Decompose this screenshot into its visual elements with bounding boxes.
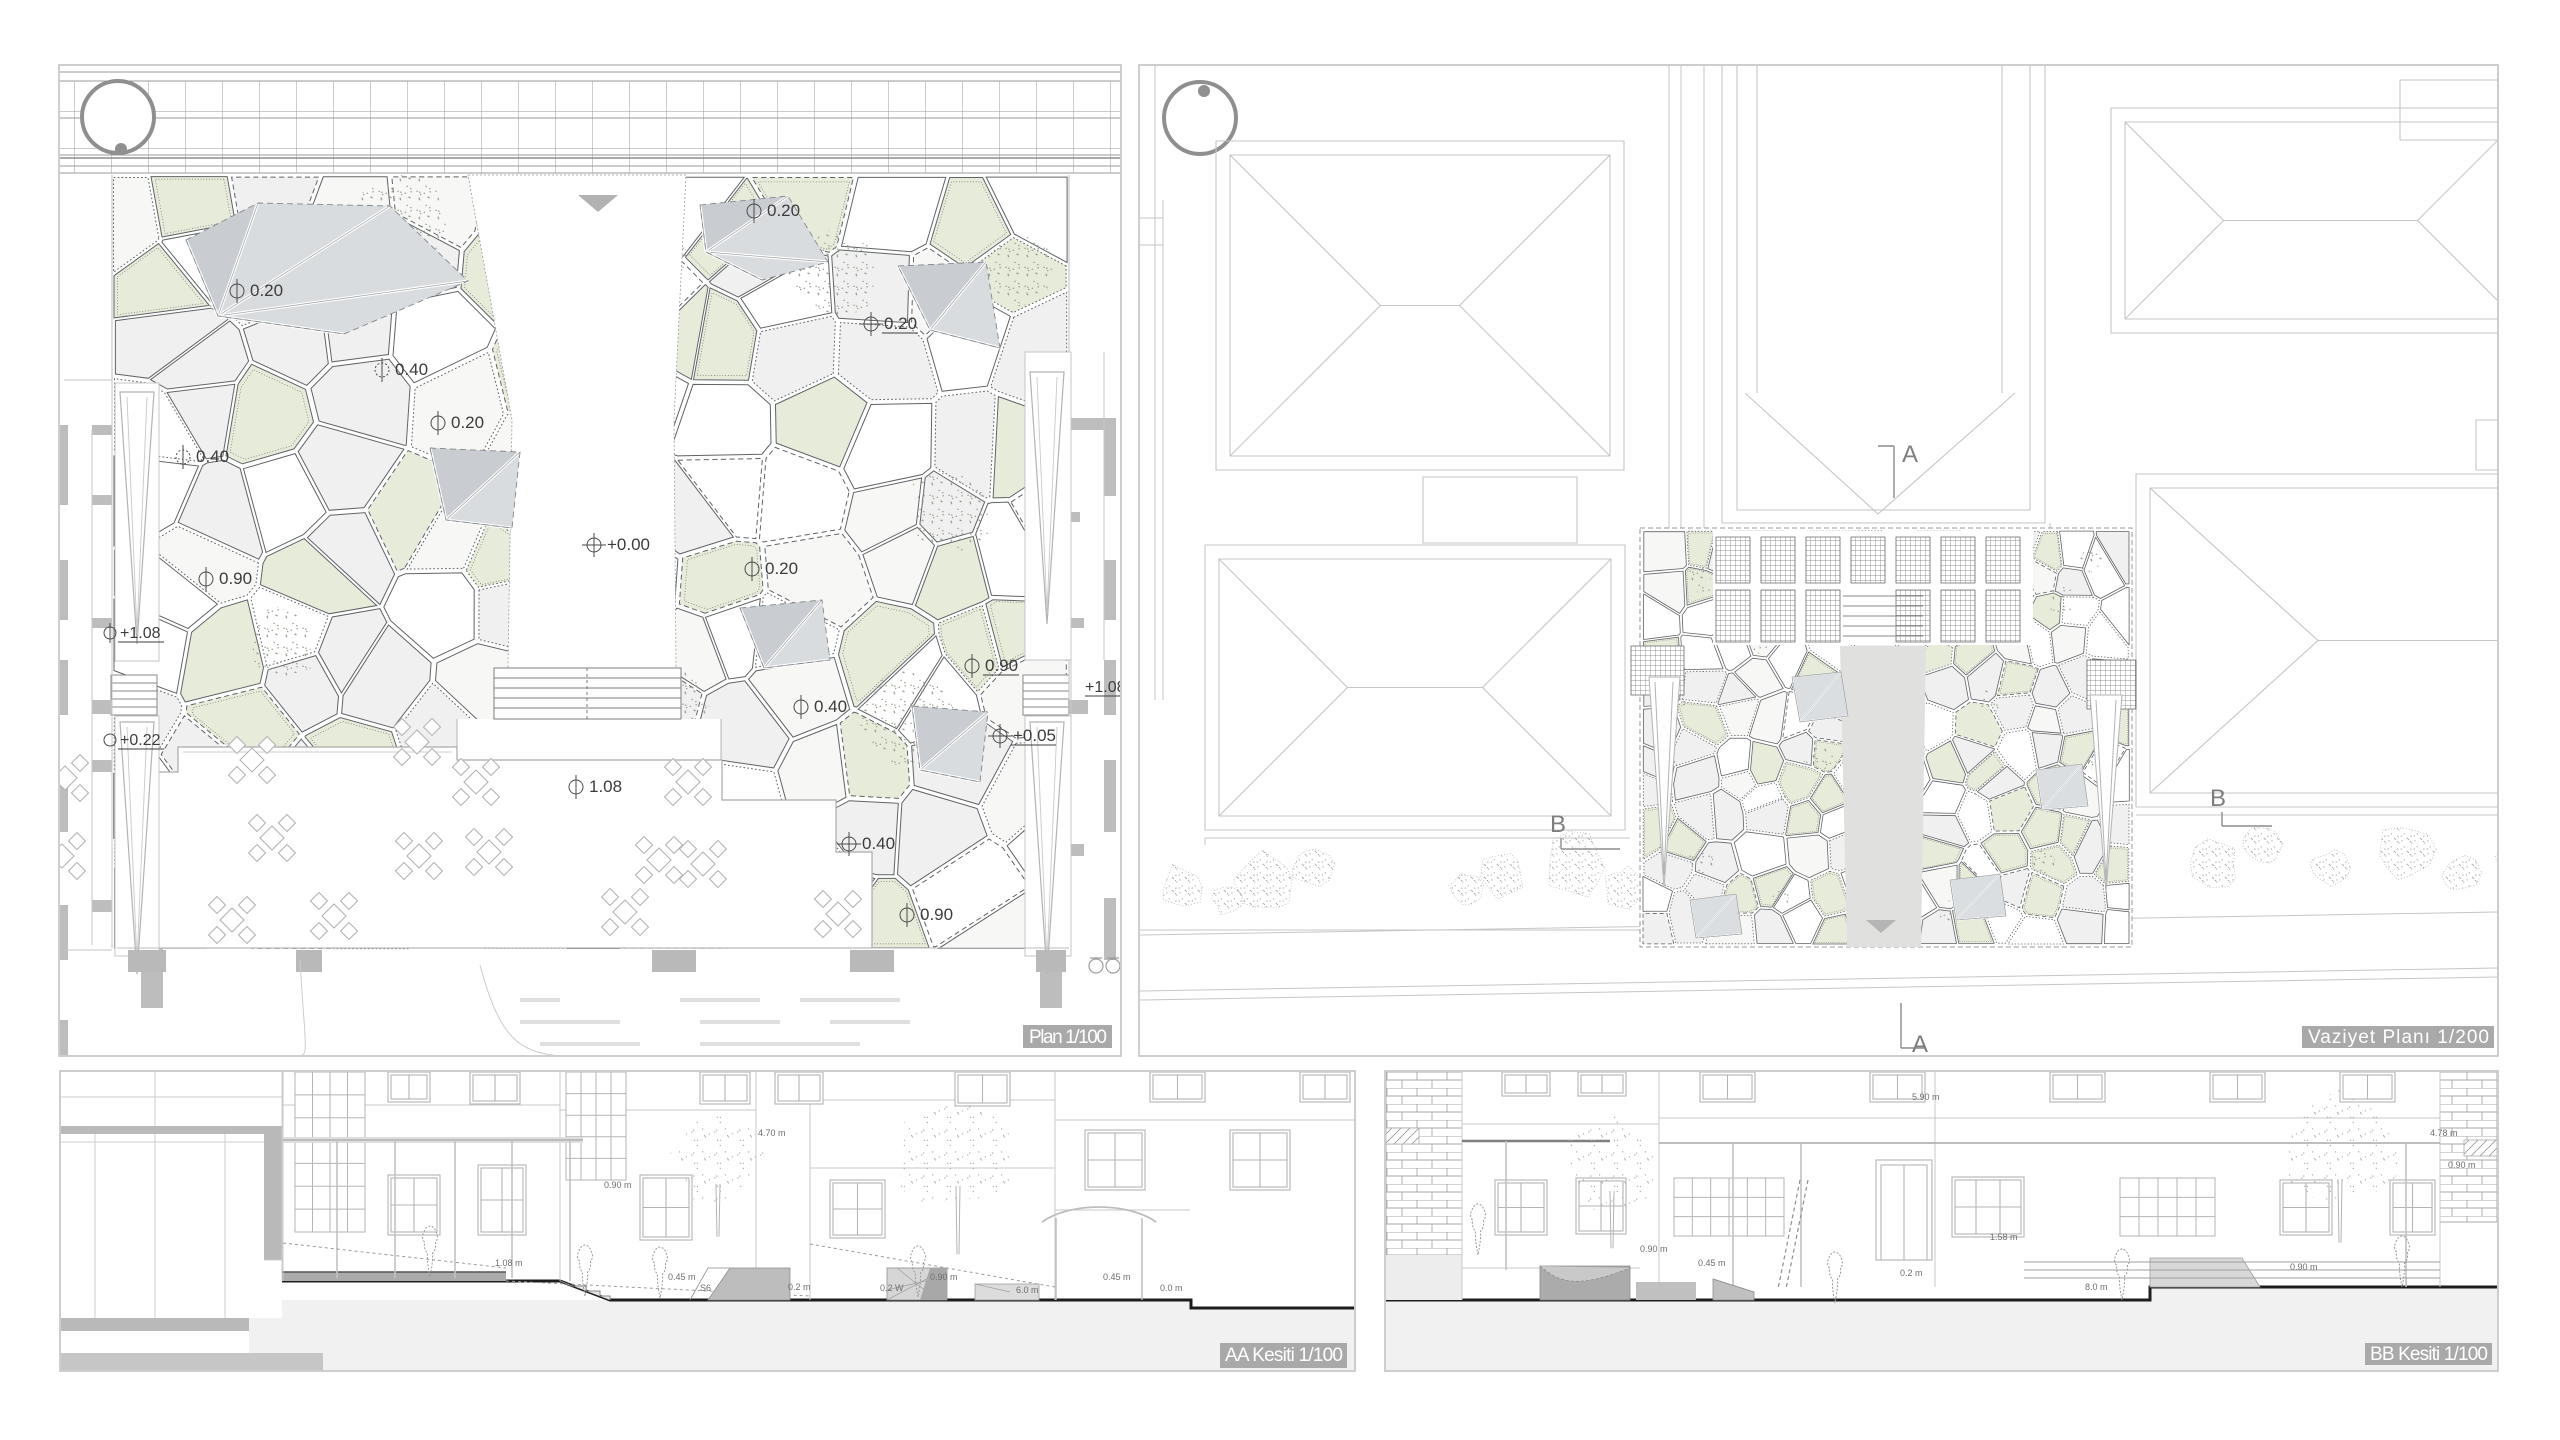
svg-text:S6: S6 (700, 1283, 711, 1293)
svg-text:0.90 m: 0.90 m (2290, 1262, 2318, 1272)
svg-text:0.20: 0.20 (884, 314, 917, 333)
svg-text:0.40: 0.40 (395, 360, 428, 379)
svg-text:5.90 m: 5.90 m (1912, 1092, 1940, 1102)
svg-text:0.2 m: 0.2 m (788, 1282, 811, 1292)
svg-text:8.0 m: 8.0 m (2085, 1282, 2108, 1292)
svg-text:0.20: 0.20 (765, 559, 798, 578)
svg-text:0.2 m: 0.2 m (1900, 1268, 1923, 1278)
svg-text:4.78 m: 4.78 m (2430, 1128, 2458, 1138)
svg-text:0.20: 0.20 (250, 281, 283, 300)
svg-text:0.2 W: 0.2 W (880, 1283, 904, 1293)
svg-text:AA Kesiti 1/100: AA Kesiti 1/100 (1225, 1345, 1343, 1366)
svg-text:+0.05: +0.05 (1013, 726, 1056, 745)
svg-text:0.20: 0.20 (451, 413, 484, 432)
svg-text:0.45 m: 0.45 m (668, 1272, 696, 1282)
svg-text:0.90 m: 0.90 m (2448, 1160, 2476, 1170)
svg-text:0.90: 0.90 (985, 656, 1018, 675)
svg-text:0.40: 0.40 (196, 447, 229, 466)
svg-text:0.40: 0.40 (862, 834, 895, 853)
svg-text:1.08 m: 1.08 m (495, 1258, 523, 1268)
svg-text:Plan 1/100: Plan 1/100 (1029, 1027, 1107, 1048)
svg-text:+0.00: +0.00 (607, 535, 650, 554)
svg-text:1.08: 1.08 (589, 777, 622, 796)
svg-text:0.90: 0.90 (219, 569, 252, 588)
svg-text:+1.08: +1.08 (1085, 679, 1126, 696)
svg-text:BB Kesiti 1/100: BB Kesiti 1/100 (2370, 1344, 2488, 1365)
svg-text:0.0 m: 0.0 m (1160, 1283, 1183, 1293)
svg-text:0.20: 0.20 (767, 201, 800, 220)
svg-text:0.45 m: 0.45 m (1103, 1272, 1131, 1282)
svg-text:1.58 m: 1.58 m (1990, 1232, 2018, 1242)
svg-text:0.40: 0.40 (814, 697, 847, 716)
svg-text:B: B (2210, 785, 2226, 812)
svg-text:0.90 m: 0.90 m (930, 1272, 958, 1282)
svg-text:+1.08: +1.08 (120, 625, 161, 642)
svg-text:0.45 m: 0.45 m (1698, 1258, 1726, 1268)
svg-text:0.90: 0.90 (920, 905, 953, 924)
svg-text:Vaziyet Planı 1/200: Vaziyet Planı 1/200 (2308, 1027, 2489, 1048)
svg-text:4.70 m: 4.70 m (758, 1128, 786, 1138)
svg-text:0.90 m: 0.90 m (604, 1180, 632, 1190)
svg-text:A: A (1902, 441, 1918, 468)
svg-text:0.90 m: 0.90 m (1640, 1244, 1668, 1254)
svg-text:6.0 m: 6.0 m (1016, 1285, 1039, 1295)
svg-text:+0.22: +0.22 (120, 732, 161, 749)
svg-text:A: A (1912, 1031, 1928, 1058)
